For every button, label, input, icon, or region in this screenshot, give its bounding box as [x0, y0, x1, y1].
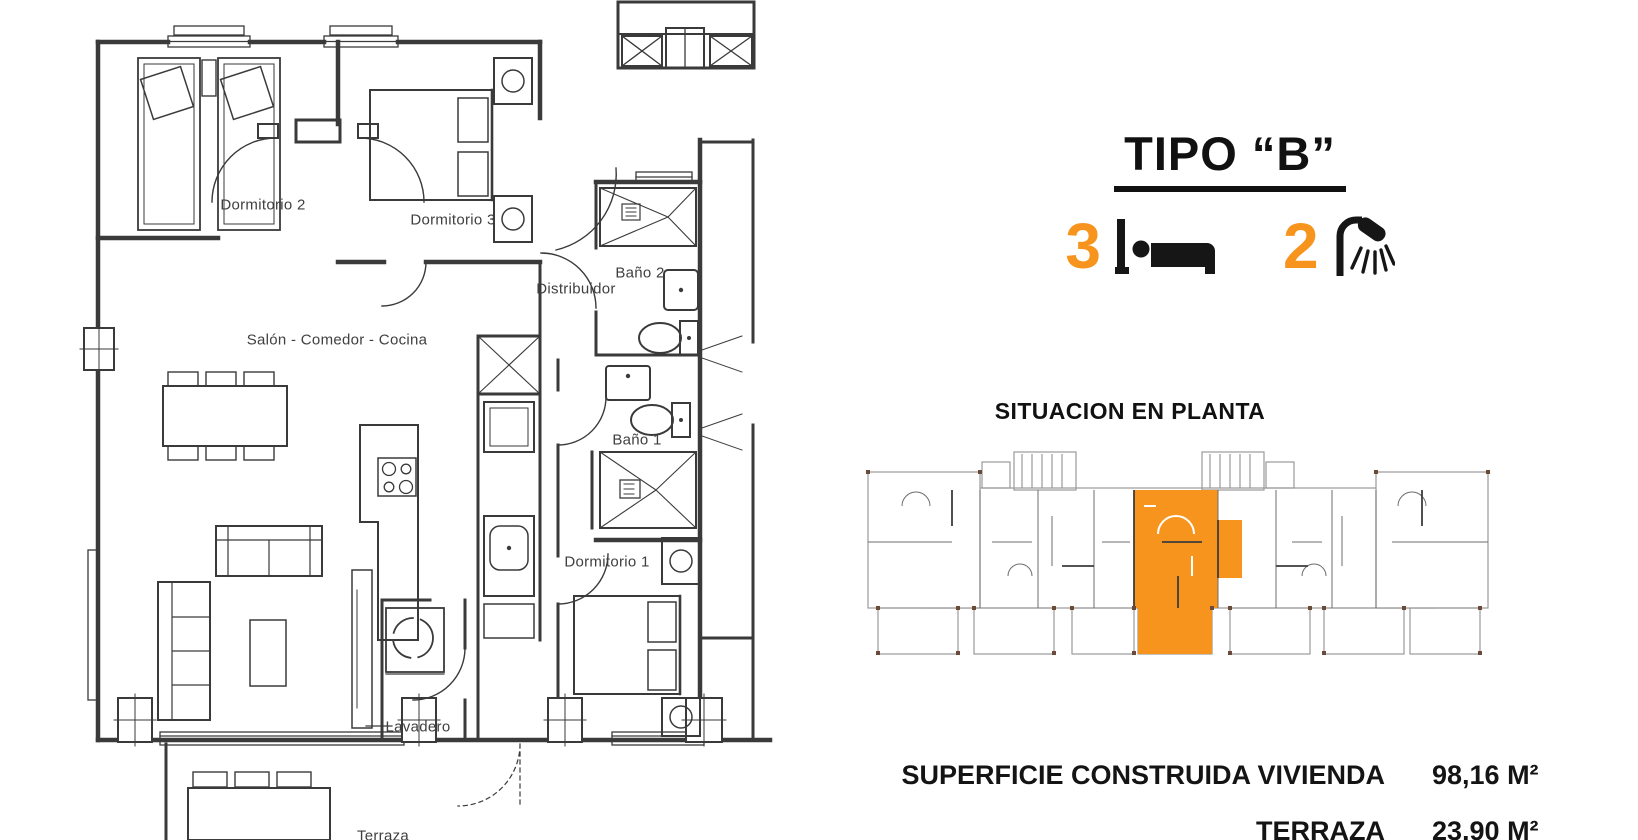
situation-heading: SITUACION EN PLANTA	[880, 398, 1380, 425]
area-label-terraza: TERRAZA	[880, 816, 1385, 840]
bedrooms-feature: 3	[1065, 215, 1219, 277]
area-label-vivienda: SUPERFICIE CONSTRUIDA VIVIENDA	[880, 760, 1385, 791]
room-label-dormitorio2: Dormitorio 2	[220, 197, 305, 214]
room-label-distribuidor: Distribuidor	[536, 281, 615, 298]
feature-icons-row: 3 2	[1020, 214, 1440, 278]
bathroom-count: 2	[1283, 215, 1319, 277]
room-label-terraza: Terraza	[357, 828, 409, 840]
brochure-page: Dormitorio 2 Dormitorio 3 Distribuidor B…	[0, 0, 1638, 840]
room-label-salon: Salón - Comedor - Cocina	[247, 332, 428, 349]
floor-plan: Dormitorio 2 Dormitorio 3 Distribuidor B…	[0, 0, 790, 840]
room-label-dormitorio3: Dormitorio 3	[410, 212, 495, 229]
room-label-lavadero: Lavadero	[386, 719, 451, 736]
shower-icon	[1333, 214, 1395, 278]
bedroom-count: 3	[1065, 215, 1101, 277]
area-value-terraza: 23,90 M²	[1432, 816, 1632, 840]
situation-plan-drawing	[862, 446, 1494, 664]
bathrooms-feature: 2	[1283, 214, 1395, 278]
room-label-bano1: Baño 1	[612, 432, 661, 449]
bed-icon	[1115, 217, 1219, 275]
room-label-dormitorio1: Dormitorio 1	[564, 554, 649, 571]
page-title: TIPO “B”	[1114, 126, 1346, 192]
area-value-vivienda: 98,16 M²	[1432, 760, 1632, 791]
floor-plan-drawing	[0, 0, 790, 840]
room-label-bano2: Baño 2	[615, 265, 664, 282]
type-title-wrap: TIPO “B”	[1020, 126, 1440, 192]
